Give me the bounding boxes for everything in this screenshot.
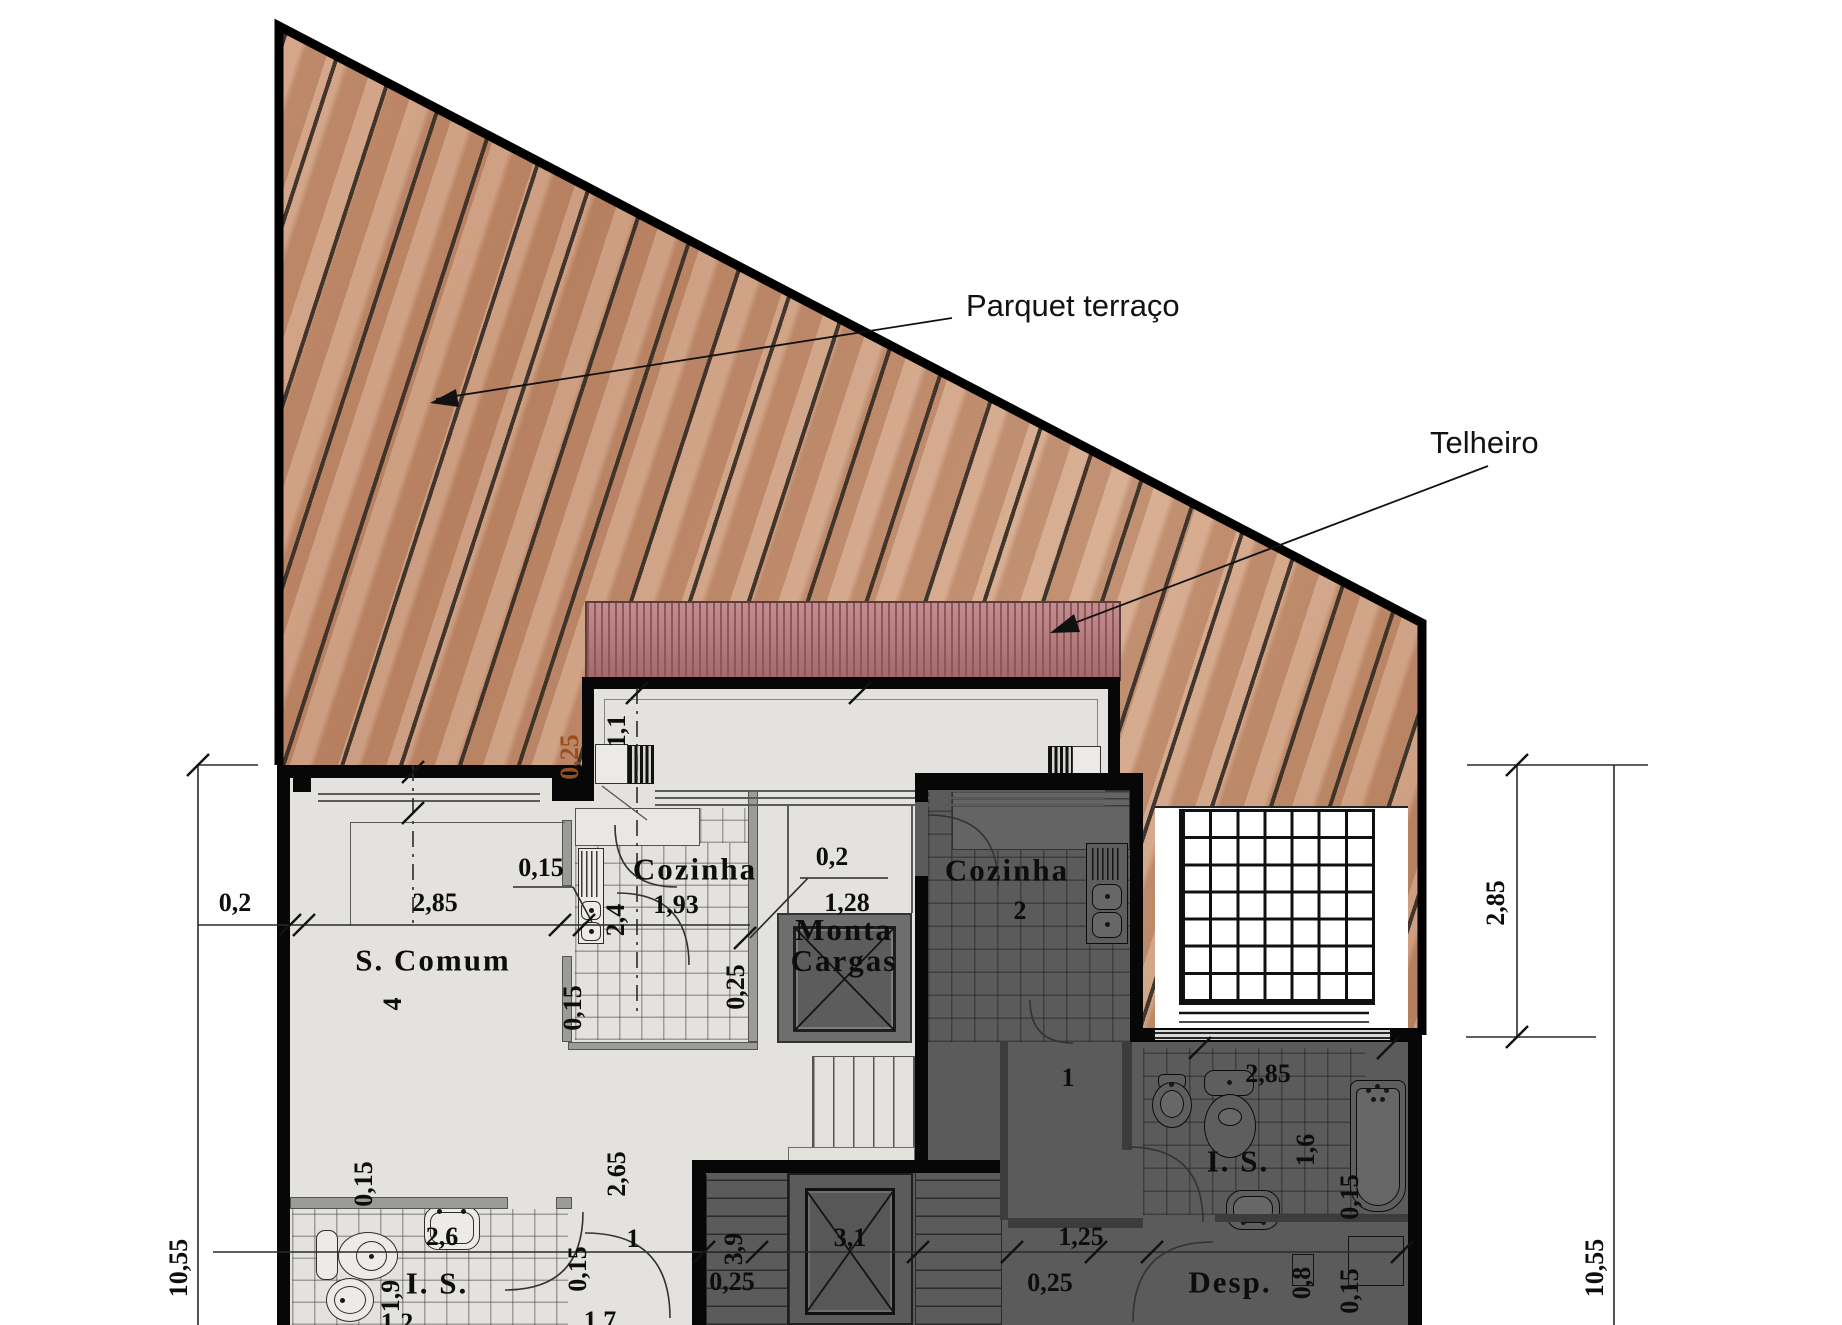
shaft-cross-marks xyxy=(795,928,894,1313)
dimension-lines xyxy=(198,688,1648,1325)
dim-label: 1,7 xyxy=(584,1306,617,1325)
dim-label: 3,1 xyxy=(834,1223,867,1253)
room-label: Cozinha xyxy=(945,855,1069,886)
dim-label: 1,6 xyxy=(1291,1134,1321,1167)
dim-label: 0,15 xyxy=(558,985,588,1031)
dim-label: 0,2 xyxy=(816,842,849,872)
room-label: Monta Cargas xyxy=(791,914,898,976)
dim-label: 2,85 xyxy=(1245,1059,1291,1089)
deck-border xyxy=(279,26,1422,1035)
dim-label: 0,25 xyxy=(721,964,751,1010)
room-label: Cozinha xyxy=(633,854,757,885)
dim-label: 1,93 xyxy=(653,890,699,920)
dim-label: 4 xyxy=(378,998,408,1011)
annotation-parquet-terraco: Parquet terraço xyxy=(966,288,1180,324)
annotation-leaders xyxy=(430,318,1488,633)
room-label: Desp. xyxy=(1188,1267,1271,1298)
room-label: I. S. xyxy=(406,1268,469,1299)
dim-label: 0,15 xyxy=(1335,1174,1365,1220)
dim-label: 0,2 xyxy=(219,888,252,918)
dim-label: 2,85 xyxy=(412,888,458,918)
dim-label: 10,55 xyxy=(1580,1239,1610,1298)
dim-label: 1,25 xyxy=(1058,1222,1104,1252)
dim-label: 2,4 xyxy=(601,904,631,937)
dim-label: 1 xyxy=(1062,1063,1075,1093)
room-label: I. S. xyxy=(1207,1146,1270,1177)
dim-label: 2,6 xyxy=(426,1222,459,1252)
dim-label: 0,25 xyxy=(709,1267,755,1297)
dim-label: 10,55 xyxy=(164,1239,194,1298)
dim-label: 1,2 xyxy=(381,1308,414,1325)
room-label: S. Comum xyxy=(355,945,511,976)
annotation-telheiro: Telheiro xyxy=(1430,425,1539,461)
dim-label: 3,9 xyxy=(719,1233,749,1266)
dim-label: 2,65 xyxy=(602,1151,632,1197)
linework-overlay xyxy=(0,0,1842,1325)
dim-label: 2,85 xyxy=(1481,880,1511,926)
dim-label: 2 xyxy=(1014,896,1027,926)
floor-plan-canvas: 0,22,850,1540,251,11,932,40,21,280,250,1… xyxy=(0,0,1842,1325)
dim-label: 0,15 xyxy=(518,853,564,883)
dim-label: 1,1 xyxy=(602,715,632,748)
dim-label: 0,15 xyxy=(563,1246,593,1292)
dim-label: 0,8 xyxy=(1287,1267,1317,1300)
dim-label: 0,15 xyxy=(349,1161,379,1207)
dim-label: 1 xyxy=(627,1224,640,1254)
dim-label: 0,25 xyxy=(555,734,585,780)
dim-label: 0,25 xyxy=(1027,1268,1073,1298)
dim-label: 0,15 xyxy=(1335,1268,1365,1314)
